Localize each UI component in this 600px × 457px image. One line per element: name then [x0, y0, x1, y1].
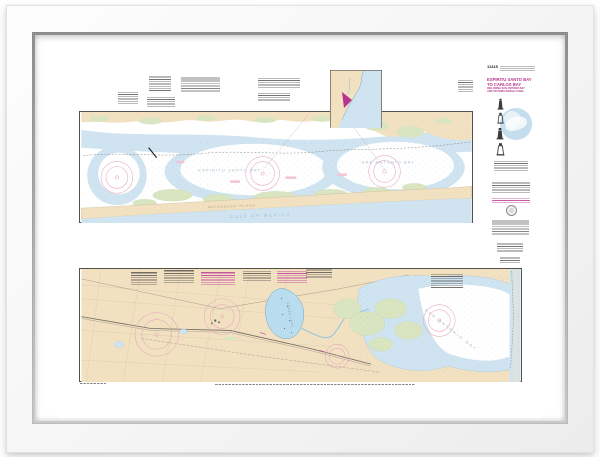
chart-title-block: 11315 ESPIRITU SANTO BAY TO CARLOS BAY I…: [487, 65, 535, 94]
title-line-1: ESPIRITU SANTO BAY: [487, 77, 535, 82]
pond: [114, 341, 124, 347]
lighthouse-icon: [496, 98, 505, 110]
pond: [180, 329, 188, 334]
soundings-texture: [359, 275, 518, 374]
magenta-note-block: [277, 270, 307, 283]
agency-text-lines: [500, 66, 535, 72]
edition-caption-line: [215, 384, 415, 385]
chart-note-block: [149, 76, 171, 92]
chart-note-block: [258, 92, 290, 101]
lighthouse-icon: [495, 142, 506, 156]
chart-note-block: [258, 77, 300, 88]
title-note-block: [497, 243, 523, 253]
chart-print: ESPIRITU SANTO BAY SAN ANTONIO BAY MATAG…: [60, 46, 540, 418]
marsh-patch: [224, 336, 236, 340]
title-note-block: [500, 257, 520, 264]
magenta-note-block: [492, 197, 530, 203]
chart-note-block: [431, 273, 463, 288]
agency-header: 11315: [487, 65, 535, 72]
tide-table-block: [492, 220, 529, 236]
chart-note-block: [458, 79, 473, 92]
bay-label: ESPIRITU SANTO BAY: [198, 167, 261, 172]
magenta-note-block: [201, 272, 235, 286]
lighthouse-icon: [496, 112, 505, 124]
publisher-seal-icon: [506, 205, 517, 216]
edition-note-line: [80, 383, 106, 384]
chart-note-block: [147, 96, 175, 107]
lighthouse-icon-column: [494, 95, 506, 156]
top-chart-panel: ESPIRITU SANTO BAY SAN ANTONIO BAY MATAG…: [79, 111, 473, 223]
inset-map: [330, 70, 382, 128]
publication-note-block: [494, 160, 528, 171]
chart-number: 11315: [487, 65, 498, 69]
chart-note-block: [118, 91, 138, 104]
top-chart-map: ESPIRITU SANTO BAY SAN ANTONIO BAY MATAG…: [80, 112, 473, 223]
page-background: ESPIRITU SANTO BAY SAN ANTONIO BAY MATAG…: [0, 0, 600, 457]
chart-title: ESPIRITU SANTO BAY TO CARLOS BAY INCLUDI…: [487, 77, 535, 94]
lighthouse-icon: [495, 127, 505, 140]
subtitle-line-2: AND VICTORIA BARGE CANAL: [487, 90, 535, 93]
chart-note-block: [243, 270, 271, 281]
bay-label: SAN ANTONIO BAY: [362, 160, 416, 165]
chart-note-block: [306, 269, 332, 279]
chart-legend-block: [181, 77, 220, 93]
title-note-block: [492, 182, 530, 194]
chart-note-block: [131, 272, 157, 286]
bottom-chart-panel: GREEN LAKE SAN ANTONIO BAY: [79, 268, 522, 382]
chart-note-block: [164, 270, 194, 284]
publisher-seal-row: [487, 205, 535, 216]
